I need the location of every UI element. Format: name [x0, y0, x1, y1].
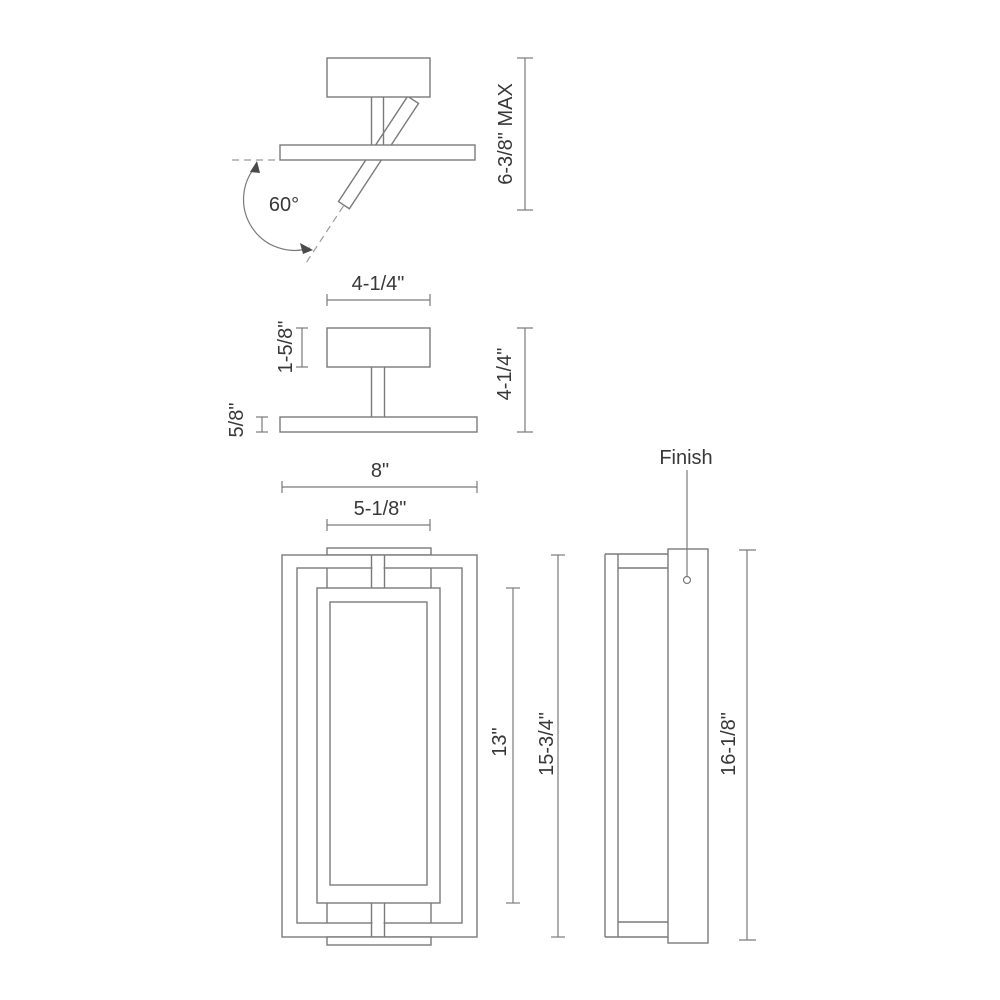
- finish-label: Finish: [659, 447, 712, 469]
- dim-label-bar-thickness: 5/8": [226, 403, 248, 438]
- side-backplate: [668, 549, 708, 943]
- dim-label-plate-width: 5-1/8": [354, 498, 407, 520]
- tilt-view: 60° 6-3/8" MAX: [232, 58, 533, 263]
- profile-view: 4-1/4" 1-5/8" 5/8" 4-1/4": [226, 273, 533, 437]
- tilt-view-canopy: [327, 58, 430, 97]
- dim-canopy-width: [327, 294, 430, 306]
- dim-max-height: 6-3/8" MAX: [495, 58, 533, 210]
- angle-arc-arrow-bottom: [300, 243, 313, 254]
- dim-side-overall-height: 16-1/8": [718, 550, 756, 940]
- dim-label-overall-width: 8": [371, 460, 389, 482]
- dim-plate-width: [327, 519, 430, 531]
- dim-overall-width: [282, 481, 477, 493]
- dim-lens-height: 13": [489, 588, 520, 903]
- dim-label-frame-height: 15-3/4": [536, 712, 558, 776]
- dim-bar-thickness: 5/8": [226, 403, 268, 438]
- dim-label-canopy-height: 1-5/8": [275, 321, 297, 374]
- front-lens-panel: [330, 602, 427, 885]
- front-top-mount-plate: [327, 548, 431, 555]
- dim-label-profile-overall-height: 4-1/4": [494, 348, 516, 401]
- frame-break-bottom: [373, 921, 384, 925]
- dim-label-side-overall-height: 16-1/8": [718, 712, 740, 776]
- dim-label-canopy-width: 4-1/4": [352, 273, 405, 295]
- profile-canopy: [327, 328, 430, 367]
- front-view: 8" 5-1/8" 13": [282, 460, 565, 945]
- dim-frame-height: 15-3/4": [536, 555, 565, 937]
- front-bottom-mount-plate: [327, 937, 431, 945]
- frame-break-top: [373, 566, 384, 570]
- tilt-view-bar: [280, 145, 475, 160]
- angle-arc-arrow-top: [250, 161, 260, 173]
- dim-label-max-height: 6-3/8" MAX: [495, 83, 517, 185]
- profile-bar: [280, 417, 477, 432]
- spec-sheet-canvas: 60° 6-3/8" MAX 4-1/4" 1-5/8": [0, 0, 1000, 1000]
- angle-label: 60°: [269, 194, 299, 216]
- side-view: Finish 16-1/8": [605, 447, 756, 943]
- tilt-axis-dashed-line: [306, 196, 350, 263]
- dim-profile-overall-height: 4-1/4": [494, 328, 533, 432]
- dim-canopy-height: 1-5/8": [275, 321, 308, 374]
- dimension-drawing: 60° 6-3/8" MAX 4-1/4" 1-5/8": [0, 0, 1000, 1000]
- dim-label-lens-height: 13": [489, 727, 511, 756]
